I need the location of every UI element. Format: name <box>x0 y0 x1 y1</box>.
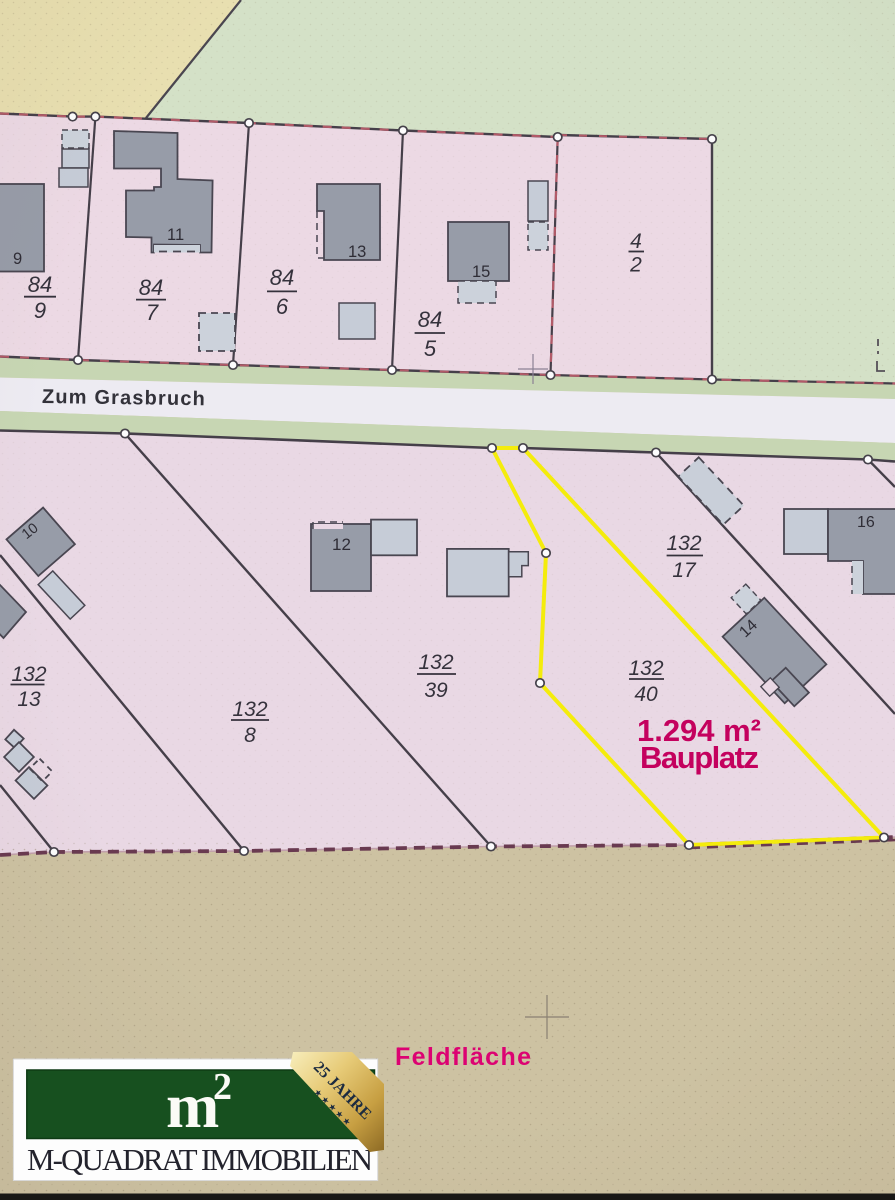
svg-text:M-QUADRAT IMMOBILIEN: M-QUADRAT IMMOBILIEN <box>27 1142 373 1177</box>
svg-text:2: 2 <box>213 1066 232 1108</box>
svg-text:m: m <box>166 1070 219 1141</box>
